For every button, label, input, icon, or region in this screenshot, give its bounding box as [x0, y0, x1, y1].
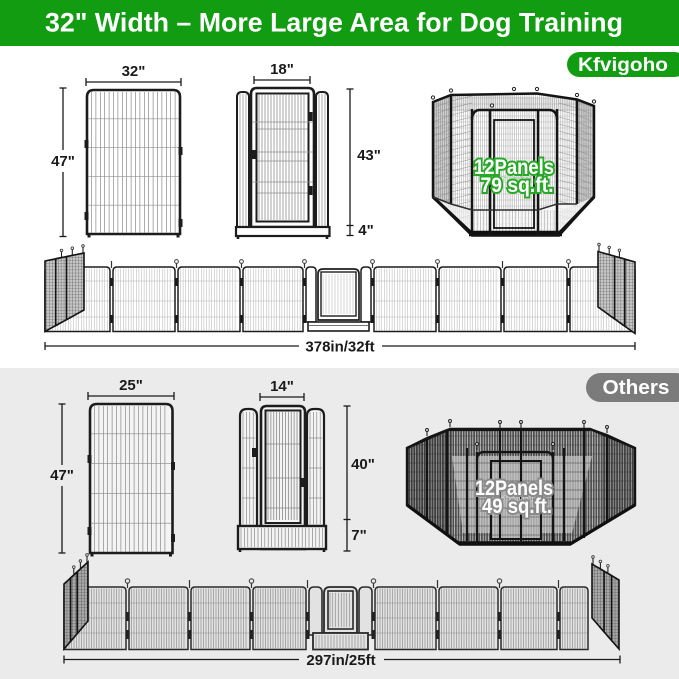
svg-text:14": 14": [270, 378, 294, 395]
svg-text:79 sq.ft.: 79 sq.ft.: [481, 174, 554, 197]
svg-text:47": 47": [50, 467, 74, 484]
svg-text:Others: Others: [603, 377, 670, 399]
svg-text:49 sq.ft.: 49 sq.ft.: [482, 495, 552, 518]
svg-text:7": 7": [351, 527, 366, 544]
svg-text:25": 25": [119, 377, 143, 394]
svg-text:297in/25ft: 297in/25ft: [306, 652, 375, 669]
svg-text:32" Width – More Large Area fo: 32" Width – More Large Area for Dog Trai…: [45, 8, 623, 38]
svg-text:378in/32ft: 378in/32ft: [305, 339, 374, 356]
svg-text:47": 47": [51, 153, 75, 170]
svg-text:43": 43": [357, 147, 381, 164]
svg-text:40": 40": [351, 456, 375, 473]
svg-text:32": 32": [122, 63, 146, 80]
svg-text:18": 18": [270, 61, 294, 78]
svg-text:Kfvigoho: Kfvigoho: [578, 55, 668, 76]
svg-text:4": 4": [358, 222, 373, 239]
